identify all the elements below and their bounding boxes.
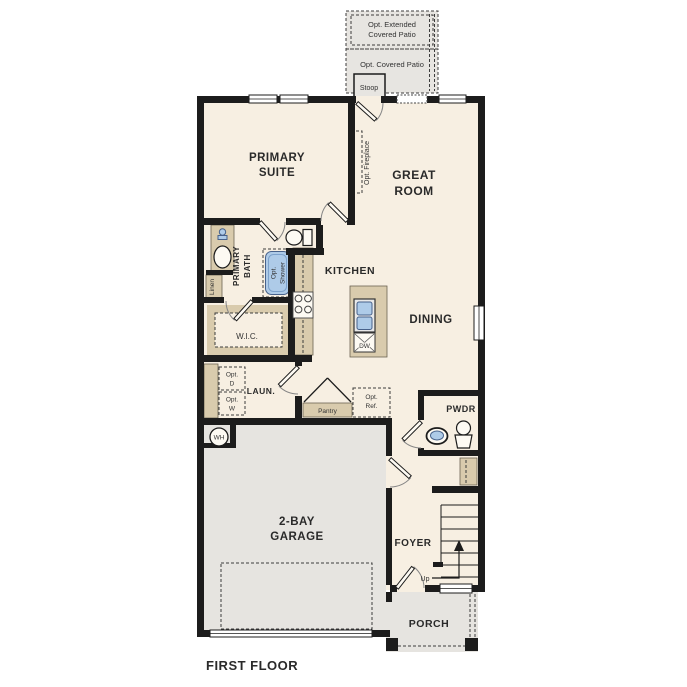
window bbox=[474, 306, 484, 340]
opt-shower-label: Opt. bbox=[271, 267, 278, 279]
laundry-label: LAUN. bbox=[247, 386, 275, 396]
window bbox=[249, 95, 277, 103]
powder-toilet bbox=[455, 421, 472, 448]
opt-dryer-label: Opt. bbox=[226, 372, 238, 379]
opt-extended-patio-label2: Covered Patio bbox=[368, 30, 416, 39]
opt-window bbox=[397, 95, 427, 103]
opt-shower: Opt. Shower bbox=[263, 249, 292, 297]
garage-label2: GARAGE bbox=[270, 531, 323, 543]
opt-fireplace-label: Opt. Fireplace bbox=[364, 141, 371, 185]
kitchen-label: KITCHEN bbox=[325, 265, 375, 277]
linen-label: Linen bbox=[209, 279, 216, 295]
opt-covered-patio-label: Opt. Covered Patio bbox=[360, 60, 424, 69]
window bbox=[280, 95, 308, 103]
stoop-label: Stoop bbox=[360, 85, 378, 92]
laundry-counter bbox=[204, 364, 218, 418]
opt-ref-label: Opt. bbox=[365, 394, 377, 401]
opt-washer-label2: W bbox=[229, 406, 236, 413]
opt-extended-patio-label: Opt. Extended bbox=[368, 20, 416, 29]
porch-post bbox=[386, 638, 398, 651]
water-heater-label: WH bbox=[214, 435, 225, 442]
wic-label: W.I.C. bbox=[236, 332, 258, 341]
primary-suite-label: PRIMARY bbox=[249, 152, 305, 164]
foyer-label: FOYER bbox=[395, 538, 432, 549]
dining-label: DINING bbox=[409, 314, 452, 326]
powder-label: PWDR bbox=[446, 404, 476, 414]
dishwasher-label: DW bbox=[359, 343, 371, 350]
garage-label: 2-BAY bbox=[279, 516, 315, 528]
porch-label: PORCH bbox=[409, 618, 449, 630]
great-room-label: GREAT bbox=[392, 168, 436, 182]
primary-bath-label: PRIMARY bbox=[232, 246, 241, 286]
opt-dryer-label2: D bbox=[230, 381, 235, 388]
dishwasher: DW bbox=[354, 333, 375, 352]
bath-toilet bbox=[286, 230, 312, 246]
opt-shower-label2: Shower bbox=[280, 261, 287, 284]
island-sink bbox=[354, 299, 375, 332]
stairs-up-label: Up bbox=[421, 576, 430, 583]
floor-plan-svg: Opt. Extended Covered Patio Opt. Covered… bbox=[0, 0, 687, 687]
opt-ref-label2: Ref. bbox=[366, 403, 378, 410]
porch-post bbox=[465, 638, 478, 651]
window bbox=[439, 95, 466, 103]
pantry-label: Pantry bbox=[318, 408, 338, 415]
primary-suite-label2: SUITE bbox=[259, 167, 295, 179]
great-room-label2: ROOM bbox=[394, 184, 433, 198]
garage-door bbox=[210, 630, 372, 637]
primary-bath-label2: BATH bbox=[243, 254, 252, 278]
opt-washer-label: Opt. bbox=[226, 397, 238, 404]
stove bbox=[293, 292, 313, 318]
water-heater: WH bbox=[210, 428, 228, 446]
floor-plan-canvas: Opt. Extended Covered Patio Opt. Covered… bbox=[0, 0, 687, 687]
page-title: FIRST FLOOR bbox=[206, 658, 298, 673]
powder-sink bbox=[427, 428, 448, 444]
window bbox=[440, 584, 472, 593]
coat-closet-shelf bbox=[460, 458, 477, 485]
